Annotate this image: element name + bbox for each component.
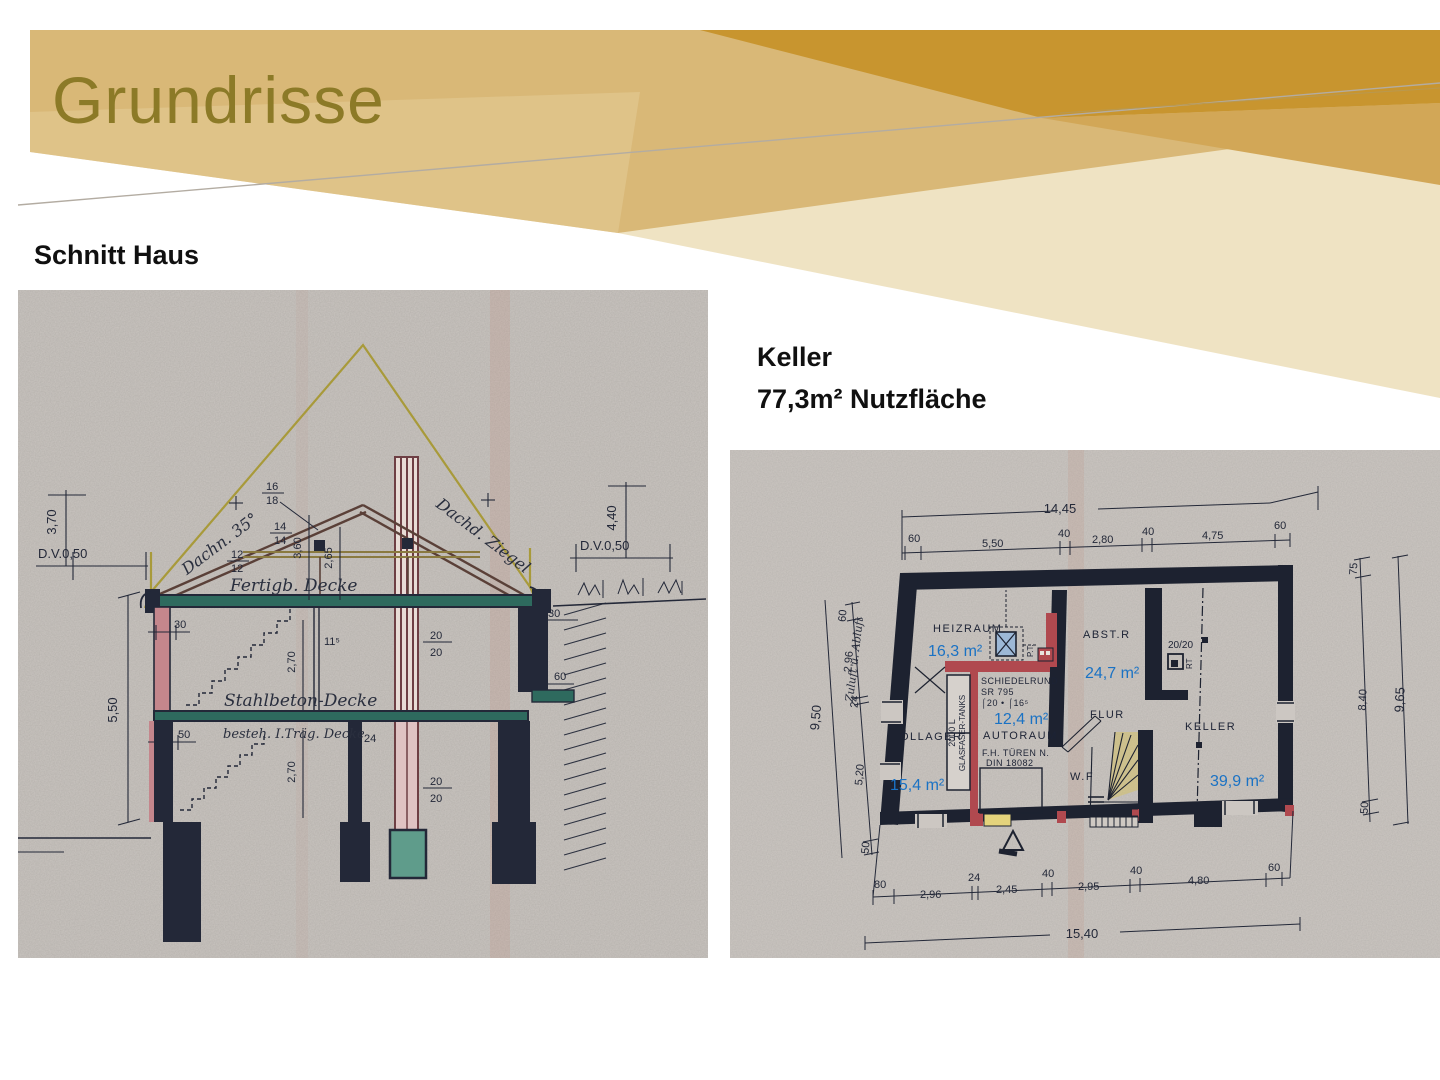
wall-60-right: 60 <box>554 671 566 683</box>
frac-14b: 14 <box>274 535 286 547</box>
dim-bottom-24: 24 <box>968 872 980 884</box>
dim-bottom-40a: 40 <box>1042 868 1054 880</box>
dim-top-60r: 60 <box>1274 520 1286 532</box>
dim-left-total: 9,50 <box>807 704 824 731</box>
dim-top-475: 4,75 <box>1202 530 1223 542</box>
note-schiedel-3: ⌠20 • ⌠16⁵ <box>981 698 1029 709</box>
room-abstr: ABST.R <box>1083 629 1131 641</box>
ceiling3-label: besteh. I.Träg. Decke <box>223 727 365 742</box>
dim-left-24: 24 <box>849 695 862 708</box>
bsmt-wall-left <box>154 721 173 822</box>
grid-2020-label: 20/20 <box>1168 640 1193 651</box>
dim-115: 11⁵ <box>324 636 340 648</box>
dim-270-lower: 2,70 <box>286 761 298 782</box>
scan-streak-2 <box>296 290 308 958</box>
dim-550: 5,50 <box>105 697 120 722</box>
terrain-ledge <box>532 690 574 702</box>
dim-bottom-480: 4,80 <box>1188 875 1209 887</box>
dim-bottom-40b: 40 <box>1130 865 1142 877</box>
right-figure-caption: Keller 77,3m² Nutzfläche <box>757 336 987 420</box>
attic-slab <box>151 595 545 607</box>
wall-30-right: 30 <box>548 608 560 620</box>
area-abstr: 24,7 m² <box>1085 665 1140 682</box>
presentation-slide: Grundrisse Schnitt Haus Keller 77,3m² Nu… <box>0 0 1440 1080</box>
dim-270-upper: 2,70 <box>286 651 298 672</box>
right-caption-line2: 77,3m² Nutzfläche <box>757 378 987 420</box>
left-figure-caption: Schnitt Haus <box>34 234 199 276</box>
wall-30-left: 30 <box>174 619 186 631</box>
wall-50: 50 <box>178 729 190 741</box>
note-tueren-2: DIN 18082 <box>986 758 1034 768</box>
dim-bottom-80: 80 <box>874 879 886 891</box>
dim-left-60: 60 <box>837 609 850 622</box>
dv-left-label: D.V.0,50 <box>38 546 87 561</box>
door-yellow <box>984 814 1011 826</box>
dim-bottom-295: 2,95 <box>1078 881 1099 893</box>
centerline-node-1 <box>1202 637 1208 643</box>
note-tueren-1: F.H. TÜREN N. <box>982 748 1049 758</box>
section-drawing-photo: D.V.0,50 D.V.0,50 3,70 4,40 5,50 3,60 2,… <box>18 290 708 958</box>
room-oellager: ÖLLAGER <box>900 731 962 743</box>
pt-box-cell-2 <box>1046 651 1050 655</box>
bsmt-wall-right <box>498 721 530 822</box>
centerline-node-2 <box>1196 742 1202 748</box>
dim-bottom-296: 2,96 <box>920 889 941 901</box>
dim-right-75: 75 <box>1348 562 1361 575</box>
rt-label: RT <box>1185 658 1194 669</box>
room-keller: KELLER <box>1185 721 1236 733</box>
dim-440: 4,40 <box>604 505 619 530</box>
note-schiedel-2: SR 795 <box>981 687 1014 697</box>
note-schiedel-1: SCHIEDELRUND <box>981 676 1058 686</box>
dim-bottom-245: 2,45 <box>996 884 1017 896</box>
area-heizraum: 16,3 m² <box>928 643 983 660</box>
chimney-footing <box>390 830 426 878</box>
pt-label: P.T. <box>1026 644 1035 657</box>
dim-top-60l: 60 <box>908 533 920 545</box>
bsmt-wall-left-edge <box>149 721 154 822</box>
flue-20-upper-a: 20 <box>430 630 442 642</box>
dim-360: 3,60 <box>292 537 304 558</box>
gf-wall-left <box>154 607 170 711</box>
stair-bottom-strip <box>1090 817 1138 827</box>
footing-left <box>163 822 201 942</box>
wall-stub <box>1162 690 1188 700</box>
flue-20-lower-b: 20 <box>430 793 442 805</box>
area-oellager: 15,4 m² <box>890 777 945 794</box>
keller-bottom-block <box>1194 803 1222 827</box>
page-title: Grundrisse <box>52 62 385 138</box>
dim-right-total: 9,65 <box>1391 687 1407 713</box>
ceiling2-label: Stahlbeton-Decke <box>224 691 377 711</box>
wall-abstr-keller <box>1145 588 1162 700</box>
dim-bottom-total: 15,40 <box>1066 926 1099 941</box>
room-wf: W.F <box>1070 771 1094 783</box>
pt-box-cell-1 <box>1040 651 1044 655</box>
right-caption-line1: Keller <box>757 336 987 378</box>
flue-20-upper-b: 20 <box>430 647 442 659</box>
dim-265: 2,65 <box>323 547 335 568</box>
frac-12a: 12 <box>231 549 243 561</box>
wall-24: 24 <box>364 733 376 745</box>
flue-20-lower-a: 20 <box>430 776 442 788</box>
ceiling1-label: Fertigb. Decke <box>229 576 357 596</box>
dim-left-50: 50 <box>860 841 873 854</box>
dim-right-50: 50 <box>1359 801 1372 814</box>
area-autoraum: 12,4 m² <box>994 711 1049 728</box>
room-flur: FLUR <box>1090 709 1125 721</box>
frac-18: 18 <box>266 495 278 507</box>
stairwell-wall <box>1138 730 1153 823</box>
basement-slab <box>154 711 528 721</box>
dim-left-520: 5,20 <box>853 764 867 786</box>
room-autoraum: AUTORAUM <box>983 730 1058 742</box>
dim-bottom-60: 60 <box>1268 862 1280 874</box>
purlin-right <box>402 538 413 549</box>
dim-370: 3,70 <box>44 509 59 534</box>
dim-right-840: 8,40 <box>1356 689 1369 711</box>
dim-top-280: 2,80 <box>1092 534 1113 546</box>
dim-top-total: 14,45 <box>1044 501 1077 516</box>
footing-right <box>492 822 536 884</box>
frac-12b: 12 <box>231 563 243 575</box>
dim-top-40a: 40 <box>1058 528 1070 540</box>
area-keller: 39,9 m² <box>1210 773 1265 790</box>
room-heizraum: HEIZRAUM <box>933 623 1002 635</box>
dim-left-296: 2,96 <box>842 651 856 673</box>
floorplan-photo: 2000 L GLASFASER-TANKS P.T. 20/20 RT <box>730 450 1440 958</box>
frac-16: 16 <box>266 481 278 493</box>
dim-top-550: 5,50 <box>982 538 1003 550</box>
footing-mid <box>340 822 370 882</box>
dim-top-40b: 40 <box>1142 526 1154 538</box>
frac-14a: 14 <box>274 521 286 533</box>
dv-right-label: D.V.0,50 <box>580 538 629 553</box>
